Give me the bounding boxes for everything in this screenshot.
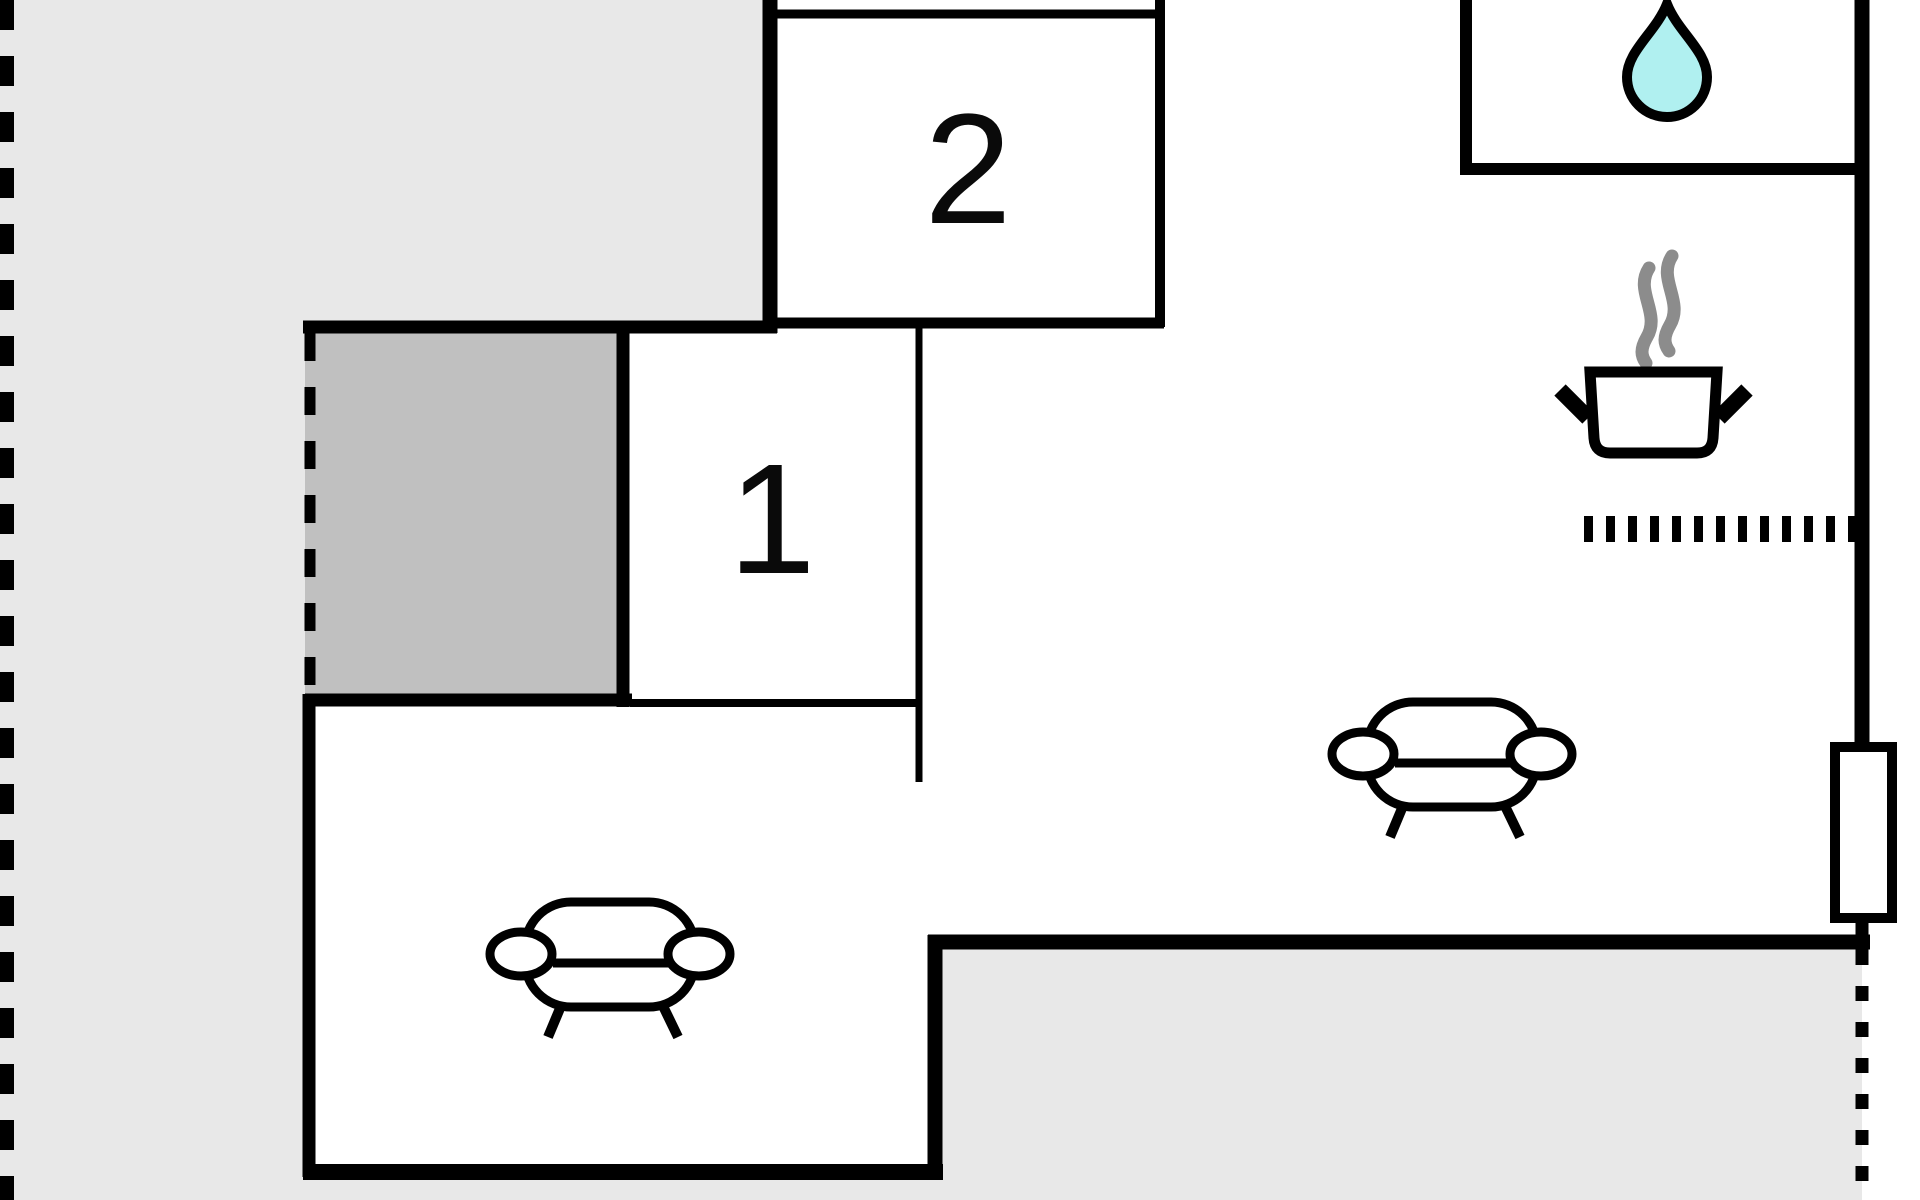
- window-icon: [1835, 747, 1892, 918]
- floor-plan-canvas: 2 1: [0, 0, 1920, 1200]
- sofa-armrest-left: [1332, 732, 1394, 776]
- sofa-armrest-right: [1510, 732, 1572, 776]
- cooking-pot-icon: [1590, 372, 1717, 453]
- room-1-label: 1: [728, 432, 815, 607]
- sofa-armrest-right: [668, 932, 730, 976]
- patio-dark-area: [305, 322, 623, 700]
- room-2-label: 2: [924, 82, 1011, 257]
- outdoor-strip-bottom: [305, 1177, 935, 1200]
- terrace-area-bottom-right: [935, 940, 1862, 1200]
- floor-plan-page: 2 1: [0, 0, 1920, 1200]
- sofa-armrest-left: [490, 932, 552, 976]
